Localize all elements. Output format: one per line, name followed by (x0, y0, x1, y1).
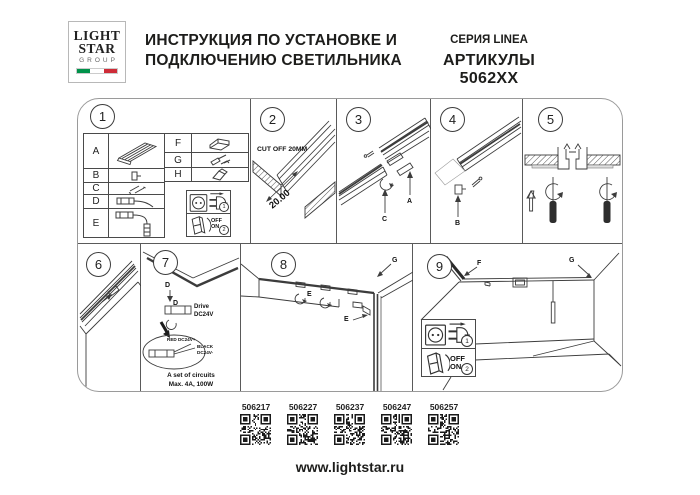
panel-9: 9 F G 1 (413, 244, 622, 392)
plug-in-step: 1 (187, 191, 230, 214)
table-row: D (84, 195, 164, 209)
qr-code (240, 414, 271, 445)
title-line-1: ИНСТРУКЦИЯ ПО УСТАНОВКЕ И (145, 31, 402, 51)
table-row: C (84, 183, 164, 195)
table-row: A (84, 134, 164, 169)
end-clip-icon (109, 169, 164, 182)
panel-6: 6 (78, 244, 141, 392)
series-block: СЕРИЯ LINEA АРТИКУЛЫ 5062XX (428, 34, 550, 88)
article-code: 506227 (287, 402, 319, 412)
black-wire-label-1: BLACK (197, 344, 213, 349)
step-number-4: 4 (440, 107, 465, 132)
driver-label-2: DC24V (194, 312, 213, 318)
part-label-h: H (165, 168, 192, 181)
driver-label-1: Drive (194, 304, 209, 310)
qr-code (428, 414, 459, 445)
rocker-switch-icon (189, 215, 211, 235)
callout-f: F (477, 260, 481, 267)
logo-star: STAR (69, 42, 125, 55)
instruction-sheet: LIGHT STAR GROUP ИНСТРУКЦИЯ ПО УСТАНОВКЕ… (0, 0, 700, 495)
article-code: 506237 (334, 402, 366, 412)
fastener-set-icon (192, 153, 248, 167)
article-item: 506257 (428, 402, 460, 445)
website-url: www.lightstar.ru (0, 459, 700, 475)
callout-c: C (382, 216, 387, 223)
step-badge-1: 1 (461, 335, 473, 347)
table-row: G (165, 153, 248, 168)
part-label-e: E (84, 209, 109, 237)
callout-e1: E (307, 291, 312, 298)
lightstar-logo: LIGHT STAR GROUP (68, 21, 126, 83)
step-badge-2: 2 (219, 225, 229, 235)
corner-cable-icon (109, 209, 164, 237)
table-row: E (84, 209, 164, 237)
plug-in-step: 1 (422, 320, 475, 349)
step-number-1: 1 (90, 104, 115, 129)
callout-d2: D (173, 300, 178, 307)
qr-code (334, 414, 365, 445)
panel-1: 1 A B (78, 99, 251, 244)
panel-8: 8 E E G (241, 244, 413, 392)
step-number-8: 8 (271, 252, 296, 277)
panel-2: 2 CUT OFF 20MM 20.00 (251, 99, 337, 244)
circuits-note-1: A set of circuits (141, 372, 241, 379)
qr-code (381, 414, 412, 445)
callout-b: B (455, 220, 460, 227)
article-code: 506247 (381, 402, 413, 412)
article-item: 506237 (334, 402, 366, 445)
step-number-5: 5 (538, 107, 563, 132)
power-legend: 1 OFF ON 2 (186, 190, 231, 237)
step-number-9: 9 (427, 254, 452, 279)
part-label-f: F (165, 134, 192, 152)
part-label-b: B (84, 169, 109, 182)
circuits-note-2: Max. 4A, 100W (141, 381, 241, 388)
panel-7: 7 D D Drive DC24V RED DC24V+ BLACK DC24V… (141, 244, 241, 392)
part-label-c: C (84, 183, 109, 194)
panel-3: 3 A C (337, 99, 431, 244)
driver-cable-icon (109, 195, 164, 208)
diagram-board: 1 A B (77, 98, 623, 392)
cut-off-note: CUT OFF 20MM (257, 146, 307, 153)
black-wire-label-2: DC24V- (197, 350, 213, 355)
series-name: СЕРИЯ LINEA (428, 34, 550, 46)
parts-table-right: F G H (164, 133, 249, 182)
articles-code: АРТИКУЛЫ 5062XX (428, 52, 550, 88)
parts-table-left: A B (83, 133, 165, 238)
callout-g: G (392, 257, 397, 264)
callout-d1: D (165, 282, 170, 289)
step-number-7: 7 (153, 250, 178, 275)
corner-connector-icon (192, 134, 248, 152)
rocker-switch-icon (424, 351, 450, 375)
profile-rail-icon (109, 134, 164, 168)
callout-e2: E (344, 316, 349, 323)
switch-on-step: OFF ON 2 (187, 214, 230, 236)
screws-icon (109, 183, 164, 194)
table-row: H (165, 168, 248, 181)
red-wire-label: RED DC24V+ (167, 337, 195, 342)
page-title: ИНСТРУКЦИЯ ПО УСТАНОВКЕ И ПОДКЛЮЧЕНИЮ СВ… (145, 31, 402, 71)
article-item: 506247 (381, 402, 413, 445)
part-label-a: A (84, 134, 109, 168)
corner-piece-icon (192, 168, 248, 181)
title-line-2: ПОДКЛЮЧЕНИЮ СВЕТИЛЬНИКА (145, 51, 402, 71)
article-code: 506257 (428, 402, 460, 412)
switch-on-step: OFF ON 2 (422, 349, 475, 376)
panel-5: 5 (523, 99, 622, 244)
part-label-d: D (84, 195, 109, 208)
power-steps-box: 1 OFF ON 2 (421, 319, 476, 377)
table-row: F (165, 134, 248, 153)
step-number-6: 6 (86, 252, 111, 277)
logo-group: GROUP (69, 57, 125, 64)
wall-corner-drawing (241, 244, 413, 392)
article-codes-row: 506217 506227 506237 506247 506257 (0, 402, 700, 445)
step-number-3: 3 (346, 107, 371, 132)
article-item: 506227 (287, 402, 319, 445)
callout-g2: G (569, 257, 574, 264)
qr-code (287, 414, 318, 445)
article-item: 506217 (240, 402, 272, 445)
step-badge-2: 2 (461, 363, 473, 375)
part-label-g: G (165, 153, 192, 167)
callout-a: A (407, 198, 412, 205)
table-row: B (84, 169, 164, 183)
step-number-2: 2 (260, 107, 285, 132)
panel-4: 4 B (431, 99, 523, 244)
italian-flag-icon (76, 68, 118, 74)
step-badge-1: 1 (219, 202, 229, 212)
article-code: 506217 (240, 402, 272, 412)
